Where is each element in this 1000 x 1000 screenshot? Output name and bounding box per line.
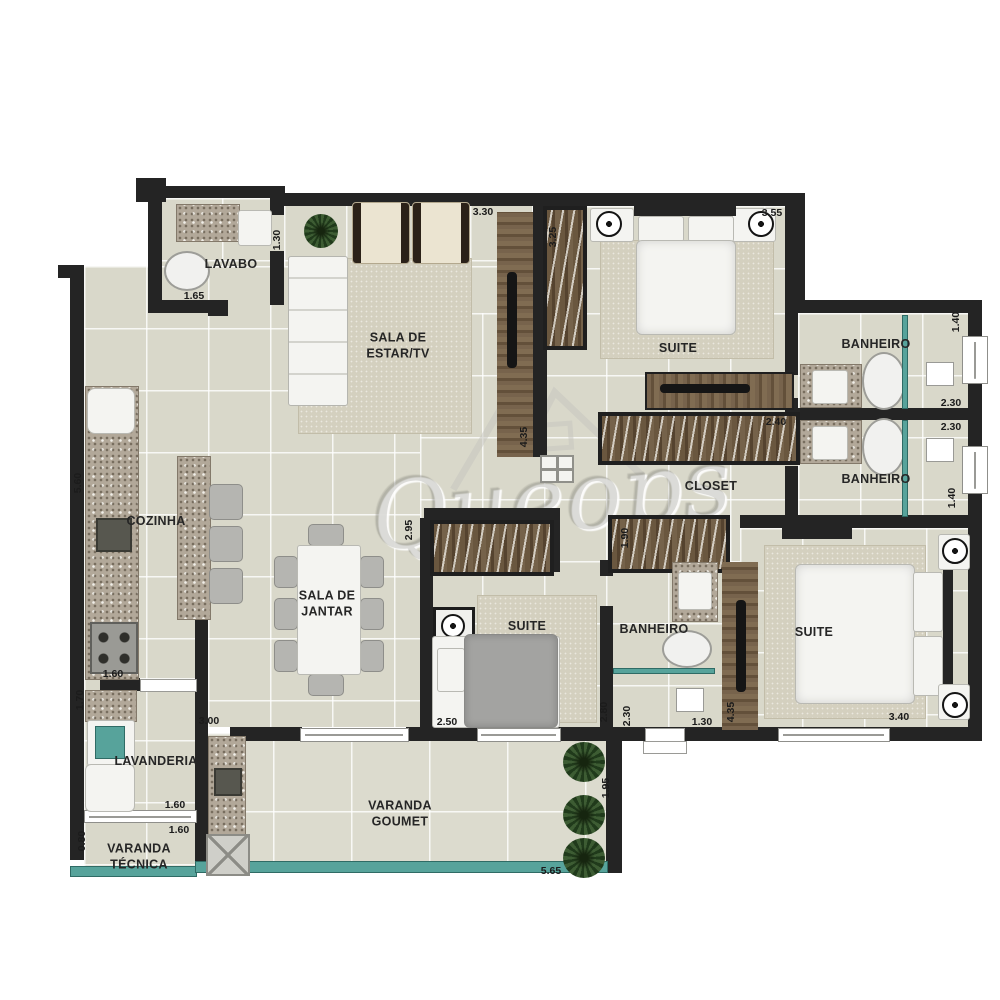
dim-label-160-kitchen: 1.60	[103, 668, 123, 680]
dim-label-300: 3.00	[199, 715, 219, 727]
room-label-suite-mid: SUITE	[508, 619, 546, 635]
sliding-door-varanda	[300, 728, 409, 742]
right-suite-speaker-bottom-icon	[942, 692, 968, 718]
dim-label-140-bot: 1.40	[946, 488, 958, 508]
banheiro-mid-shower-head	[676, 688, 704, 712]
room-label-varanda-goumet: VARANDA GOUMET	[368, 798, 432, 829]
cabinet-cell	[542, 457, 556, 468]
banheiro-right-toilet	[862, 418, 906, 476]
dining-chair-r2	[360, 598, 384, 630]
lavabo-counter	[176, 204, 240, 242]
banheiro-right-shower-glass	[902, 420, 908, 517]
banheiro-mid-shower-glass	[613, 668, 715, 674]
dim-label-295: 2.95	[403, 520, 415, 540]
banheiro-right-sink	[812, 426, 848, 460]
dim-label-195: 1.95	[600, 778, 612, 798]
window-banheiro-top	[962, 336, 988, 384]
banheiro-top-shower-glass	[902, 315, 908, 409]
dining-chair-l2	[274, 598, 298, 630]
dining-chair-l3	[274, 640, 298, 672]
varanda-plant-1	[563, 742, 605, 782]
dim-label-080: 0.80	[76, 831, 88, 851]
tv-right-suite	[736, 600, 746, 692]
room-label-sala-estar: SALA DE ESTAR/TV	[366, 330, 429, 361]
dim-label-140-top: 1.40	[950, 312, 962, 332]
suite-top-bed-duvet	[636, 240, 736, 335]
suite-top-bed-headboard	[634, 204, 736, 216]
banheiro-top-shower-head	[926, 362, 954, 386]
dim-label-130-ban: 1.30	[692, 716, 712, 728]
dining-chair-r3	[360, 640, 384, 672]
wall-lavabo-right-upper	[270, 193, 284, 215]
mid-suite-blanket	[464, 634, 558, 728]
gourmet-sink	[214, 768, 242, 796]
dim-label-170: 1.70	[74, 690, 86, 710]
window-mid-suite	[477, 728, 561, 742]
dim-label-230-a: 2.30	[941, 397, 961, 409]
speaker-left-icon	[596, 211, 622, 237]
laundry-tank	[85, 764, 135, 812]
room-label-lavabo: LAVABO	[205, 257, 258, 273]
dim-label-330: 3.30	[473, 206, 493, 218]
sofa	[288, 256, 348, 406]
wall-suite-top-right	[785, 193, 805, 313]
dim-label-435-suite: 4.35	[725, 702, 737, 722]
wall-varanda-right	[606, 741, 622, 873]
dining-chair-top	[308, 524, 344, 546]
dim-label-340: 3.40	[889, 711, 909, 723]
dim-label-565: 5.65	[541, 865, 561, 877]
room-label-sala-jantar: SALA DE JANTAR	[299, 588, 356, 619]
hall-cabinet	[540, 455, 574, 483]
cabinet-cell	[542, 471, 556, 482]
kitchen-island	[177, 456, 211, 620]
dim-label-190: 1.90	[619, 528, 631, 548]
banheiro-top-sink	[812, 370, 848, 404]
dim-label-250: 2.50	[437, 716, 457, 728]
dining-chair-bottom	[308, 674, 344, 696]
wall-outer-left	[70, 265, 84, 860]
dim-label-355: 3.55	[762, 207, 782, 219]
window-banheiro-right	[962, 446, 988, 494]
cabinet-cell	[559, 471, 573, 482]
banheiro-mid-sink	[678, 572, 712, 610]
wall-lavabo-left	[148, 186, 162, 313]
lavabo-toilet	[164, 251, 210, 291]
wardrobe-mid-suite	[430, 520, 554, 576]
island-stool-2	[209, 526, 243, 562]
banheiro-top-toilet	[862, 352, 906, 410]
suite-top-bed-pillow-right	[688, 216, 734, 242]
armchair-right	[412, 202, 470, 264]
dim-label-130-lavabo: 1.30	[271, 230, 283, 250]
tv-living	[507, 272, 517, 368]
laundry-counter	[85, 690, 137, 722]
entry-door-step	[643, 741, 687, 754]
room-label-suite-top: SUITE	[659, 341, 697, 357]
dining-chair-r1	[360, 556, 384, 588]
mid-suite-table-knob	[441, 614, 465, 638]
dim-label-560: 5.60	[72, 473, 84, 493]
varanda-plant-3	[563, 838, 605, 878]
grill	[206, 834, 250, 876]
window-right-suite	[778, 728, 890, 742]
dim-label-435-living: 4.35	[518, 427, 530, 447]
room-label-cozinha: COZINHA	[126, 514, 185, 530]
dim-label-280: 2.80	[598, 702, 610, 722]
wall-lavabo-top	[148, 186, 285, 198]
dim-label-160-var: 1.60	[169, 824, 189, 836]
dining-chair-l1	[274, 556, 298, 588]
dim-label-230-ban: 2.30	[621, 706, 633, 726]
cabinet-cell	[559, 457, 573, 468]
living-plant	[304, 214, 338, 248]
dim-label-230-b: 2.30	[941, 421, 961, 433]
right-suite-bed-headboard	[943, 566, 953, 700]
armchair-left	[352, 202, 410, 264]
room-label-banheiro-top: BANHEIRO	[841, 337, 910, 353]
dim-label-165: 1.65	[184, 290, 204, 302]
island-stool-1	[209, 484, 243, 520]
wall-lavabo-right-lower	[270, 251, 284, 305]
entry-door	[645, 728, 685, 742]
right-suite-console	[782, 528, 852, 539]
suite-top-dresser-tv	[660, 384, 750, 393]
dim-label-325: 3.25	[547, 227, 559, 247]
island-stool-3	[209, 568, 243, 604]
stove	[90, 622, 138, 674]
room-label-lavanderia: LAVANDERIA	[114, 754, 197, 770]
room-label-closet: CLOSET	[685, 479, 738, 495]
room-label-suite-right: SUITE	[795, 625, 833, 641]
fridge	[87, 388, 135, 434]
door-kitchen-laundry	[140, 679, 197, 692]
right-suite-pillow-top	[913, 572, 943, 632]
wall-rsuite-top	[740, 515, 968, 528]
wall-closet-right-a	[785, 313, 798, 375]
dim-label-160-lav: 1.60	[165, 799, 185, 811]
banheiro-right-shower-head	[926, 438, 954, 462]
room-label-banheiro-right: BANHEIRO	[841, 472, 910, 488]
wall-lavabo-bottom-cap	[208, 300, 228, 316]
suite-top-bed-pillow-left	[638, 216, 684, 242]
room-label-varanda-tecnica: VARANDA TÉCNICA	[107, 841, 171, 872]
room-label-banheiro-mid: BANHEIRO	[619, 622, 688, 638]
floor-plan: Queops	[0, 0, 1000, 1000]
right-suite-speaker-top-icon	[942, 538, 968, 564]
mid-suite-pillow	[437, 648, 465, 692]
wall-closet-right-c	[785, 466, 798, 528]
varanda-plant-2	[563, 795, 605, 835]
lavabo-sink	[238, 210, 272, 246]
dim-label-240: 2.40	[766, 416, 786, 428]
